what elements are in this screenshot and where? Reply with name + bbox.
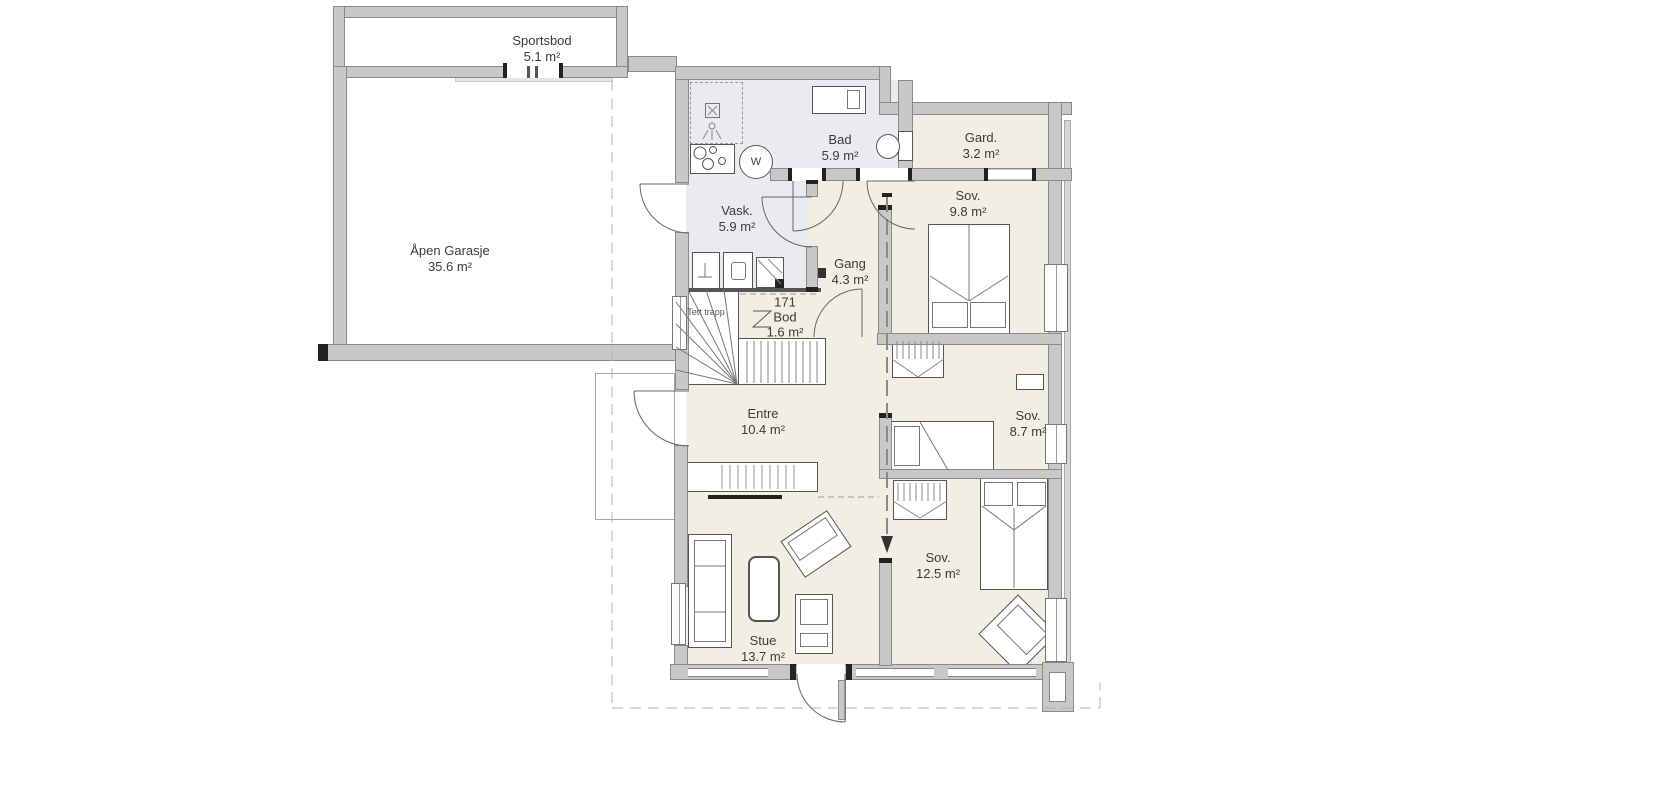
wall-sov1-sov2 [877,333,1062,345]
window-bottom-2 [856,668,934,677]
wall-sportsbod-top [333,6,628,18]
coffee-table [748,556,780,622]
bathroom-sink-icon [690,144,735,174]
room-name: Sportsbod [512,33,571,49]
floor-plan: W [0,0,1670,800]
room-label-sov1: Sov. 9.8 m² [950,188,987,220]
room-label-garasje: Åpen Garasje 35.6 m² [410,243,490,275]
sofa-seat [694,540,726,642]
bed-pillow [932,302,968,328]
door-tick [822,168,826,181]
wall-cap [878,205,892,210]
sportsbod-door-opening [505,66,561,78]
toilet-bowl [876,134,900,159]
window-sov1-right [1044,264,1068,332]
door-tick [856,168,860,181]
wall-garage-left [333,66,347,356]
gard-closet-opening [988,170,1034,179]
window-sov2-right [1045,424,1067,464]
room-label-entre: Entre 10.4 m² [741,406,785,438]
room-area: 5.9 m² [719,219,756,235]
room-area: 12.5 m² [916,566,960,582]
room-name: Vask. [719,203,756,219]
bed-pillow [984,482,1013,506]
room-area: 9.8 m² [950,204,987,220]
door-arc-garage [640,184,689,233]
chair-stue [795,594,833,654]
room-label-bad: Bad 5.9 m² [822,132,859,164]
bed-pillow [894,426,920,466]
wall-cap [806,180,818,184]
room-area: 35.6 m² [410,259,490,275]
room-area: 5.9 m² [822,148,859,164]
bathtub-icon [812,86,866,114]
door-tick [908,168,912,181]
bed-pillow [1017,482,1046,506]
room-name: Gang [832,256,869,272]
door-tick [559,63,563,78]
wall-sportsbod-right [616,6,628,72]
room-name: Åpen Garasje [410,243,490,259]
window-sov3-right [1045,598,1067,662]
room-name: Bod [767,310,804,325]
window-stair-left [672,296,687,350]
wall-garage-bottom [318,344,688,361]
chair-back [800,633,828,647]
wall-vask-gang-b [806,246,818,292]
room-name: Sov. [950,188,987,204]
wall-central-2 [879,413,892,472]
window-bottom-3 [948,668,1036,677]
room-name: Entre [741,406,785,422]
wall-connector [628,56,677,72]
room-number: 171 [767,295,804,310]
room-area: 10.4 m² [741,422,785,438]
room-label-vask: Vask. 5.9 m² [719,203,756,235]
label-tett-trapp: Tett trapp [687,307,725,317]
stair-label: Tett trapp [687,307,725,317]
washing-machine-icon: W [739,145,773,179]
vask-partition-line [675,288,821,292]
window-stue-left [671,583,686,645]
room-area: 1.6 m² [767,325,804,340]
wall-sov2-sov3 [879,469,1062,479]
door-tick [984,168,988,181]
floor-drain-icon [705,103,720,118]
wall-right [1048,102,1062,678]
vask-gang-doorstop [818,268,826,278]
wall-central-1 [878,205,892,335]
door-tick [503,63,507,78]
wall-house-left-1 [675,66,689,183]
wall-cap [879,558,892,563]
room-label-gard: Gard. 3.2 m² [963,130,1000,162]
laundry-sink-icon [723,252,753,289]
bed-pillow [970,302,1006,328]
wall-central-3 [879,558,892,666]
wall-cap [806,287,818,292]
bathtub-inner [847,90,860,109]
wall-terrace-stub [838,680,846,720]
wall-house-left-3 [674,445,688,587]
sov1-door-opening [860,168,908,181]
corner-bump-inner [1049,672,1066,702]
wall-cap [846,664,852,680]
room-label-sov3: Sov. 12.5 m² [916,550,960,582]
room-label-stue: Stue 13.7 m² [741,633,785,665]
room-name: Bad [822,132,859,148]
room-name: Stue [741,633,785,649]
washing-machine-label: W [740,146,772,178]
room-area: 3.2 m² [963,146,1000,162]
room-label-sov2: Sov. 8.7 m² [1010,408,1047,440]
laundry-sink-basin [731,262,746,280]
room-name: Gard. [963,130,1000,146]
room-area: 8.7 m² [1010,424,1047,440]
wall-cap [879,413,892,418]
room-name: Sov. [1010,408,1047,424]
water-heater-corner [775,279,784,288]
stue-door-opening [797,664,845,680]
room-area: 5.1 m² [512,49,571,65]
room-area: 13.7 m² [741,649,785,665]
closet-sov3 [893,480,947,520]
window-bottom-1 [688,668,768,677]
door-tick [535,66,538,78]
door-tick [527,66,530,78]
sofa [688,534,732,648]
wall-right-cladding [1064,120,1071,668]
wall-cap [318,344,328,361]
chair-seat [800,599,828,625]
wall-bad-top [675,66,891,80]
toilet-icon [898,131,913,161]
room-label-sportsbod: Sportsbod 5.1 m² [512,33,571,65]
room-label-bod: 171 Bod 1.6 m² [767,295,804,340]
door-tick [1032,168,1036,181]
laundry-cabinet [692,252,720,289]
stairs-run [738,338,826,385]
side-table-sov2 [1016,374,1044,390]
entre-wardrobe [680,462,818,492]
room-area: 4.3 m² [832,272,869,288]
door-tick [788,168,792,181]
entry-porch [595,373,675,520]
wall-cap [790,664,796,680]
wall-sportsbod-bottom [333,66,628,78]
room-label-gang: Gang 4.3 m² [832,256,869,288]
room-name: Sov. [916,550,960,566]
entre-threshold-bar [708,495,782,499]
